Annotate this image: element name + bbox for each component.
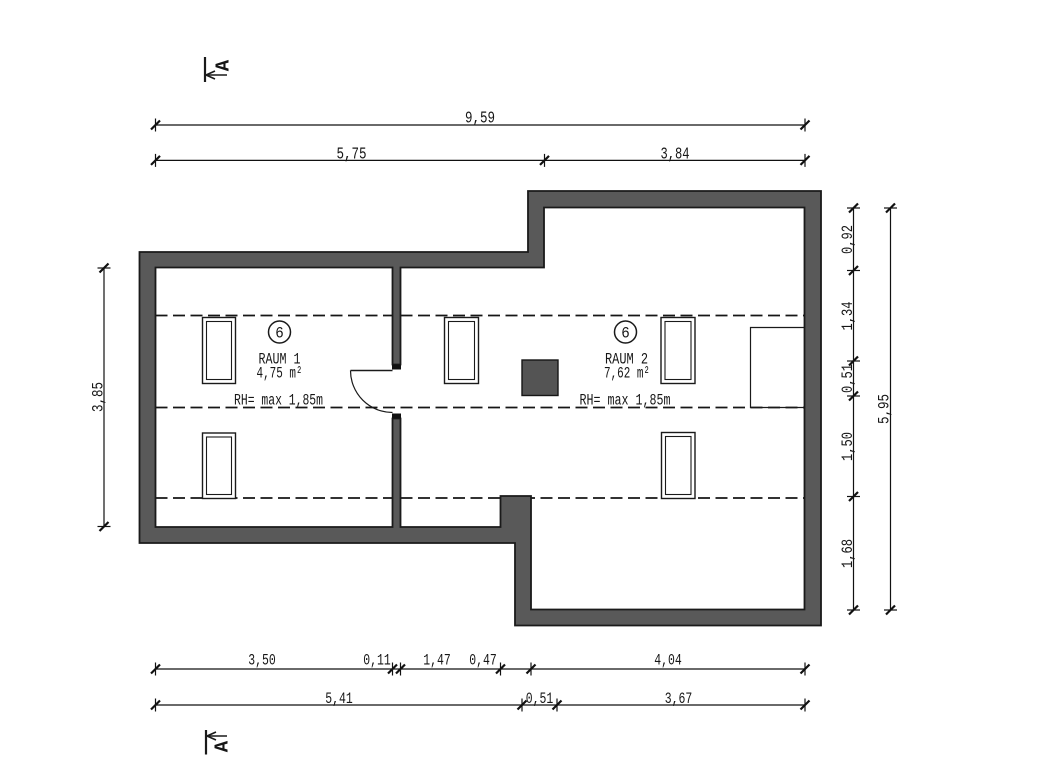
svg-text:1,50: 1,50 <box>839 432 857 461</box>
svg-text:3,67: 3,67 <box>665 690 693 708</box>
svg-text:4,04: 4,04 <box>654 652 682 670</box>
svg-text:3,84: 3,84 <box>661 146 690 165</box>
svg-text:6: 6 <box>621 325 630 343</box>
svg-text:1,68: 1,68 <box>839 539 857 568</box>
svg-text:0,47: 0,47 <box>469 652 497 670</box>
svg-text:A: A <box>212 740 234 752</box>
svg-text:5,95: 5,95 <box>876 394 894 424</box>
svg-text:9,59: 9,59 <box>465 110 495 129</box>
svg-text:0,92: 0,92 <box>839 225 857 254</box>
svg-text:7,62 m²: 7,62 m² <box>604 365 650 383</box>
svg-text:3,50: 3,50 <box>248 652 276 670</box>
svg-text:0,11: 0,11 <box>363 652 391 670</box>
svg-text:3,85: 3,85 <box>90 382 108 412</box>
svg-text:RH= max 1,85m: RH= max 1,85m <box>580 392 671 410</box>
svg-text:1,47: 1,47 <box>423 652 451 670</box>
svg-text:0,51: 0,51 <box>839 364 857 393</box>
svg-text:A: A <box>213 59 235 71</box>
svg-text:5,41: 5,41 <box>325 690 353 708</box>
svg-text:0,51: 0,51 <box>526 690 554 708</box>
svg-text:6: 6 <box>275 325 284 343</box>
svg-text:1,34: 1,34 <box>839 302 857 331</box>
svg-text:4,75 m²: 4,75 m² <box>257 365 303 383</box>
svg-text:RH= max 1,85m: RH= max 1,85m <box>234 392 323 410</box>
svg-text:5,75: 5,75 <box>337 146 367 165</box>
